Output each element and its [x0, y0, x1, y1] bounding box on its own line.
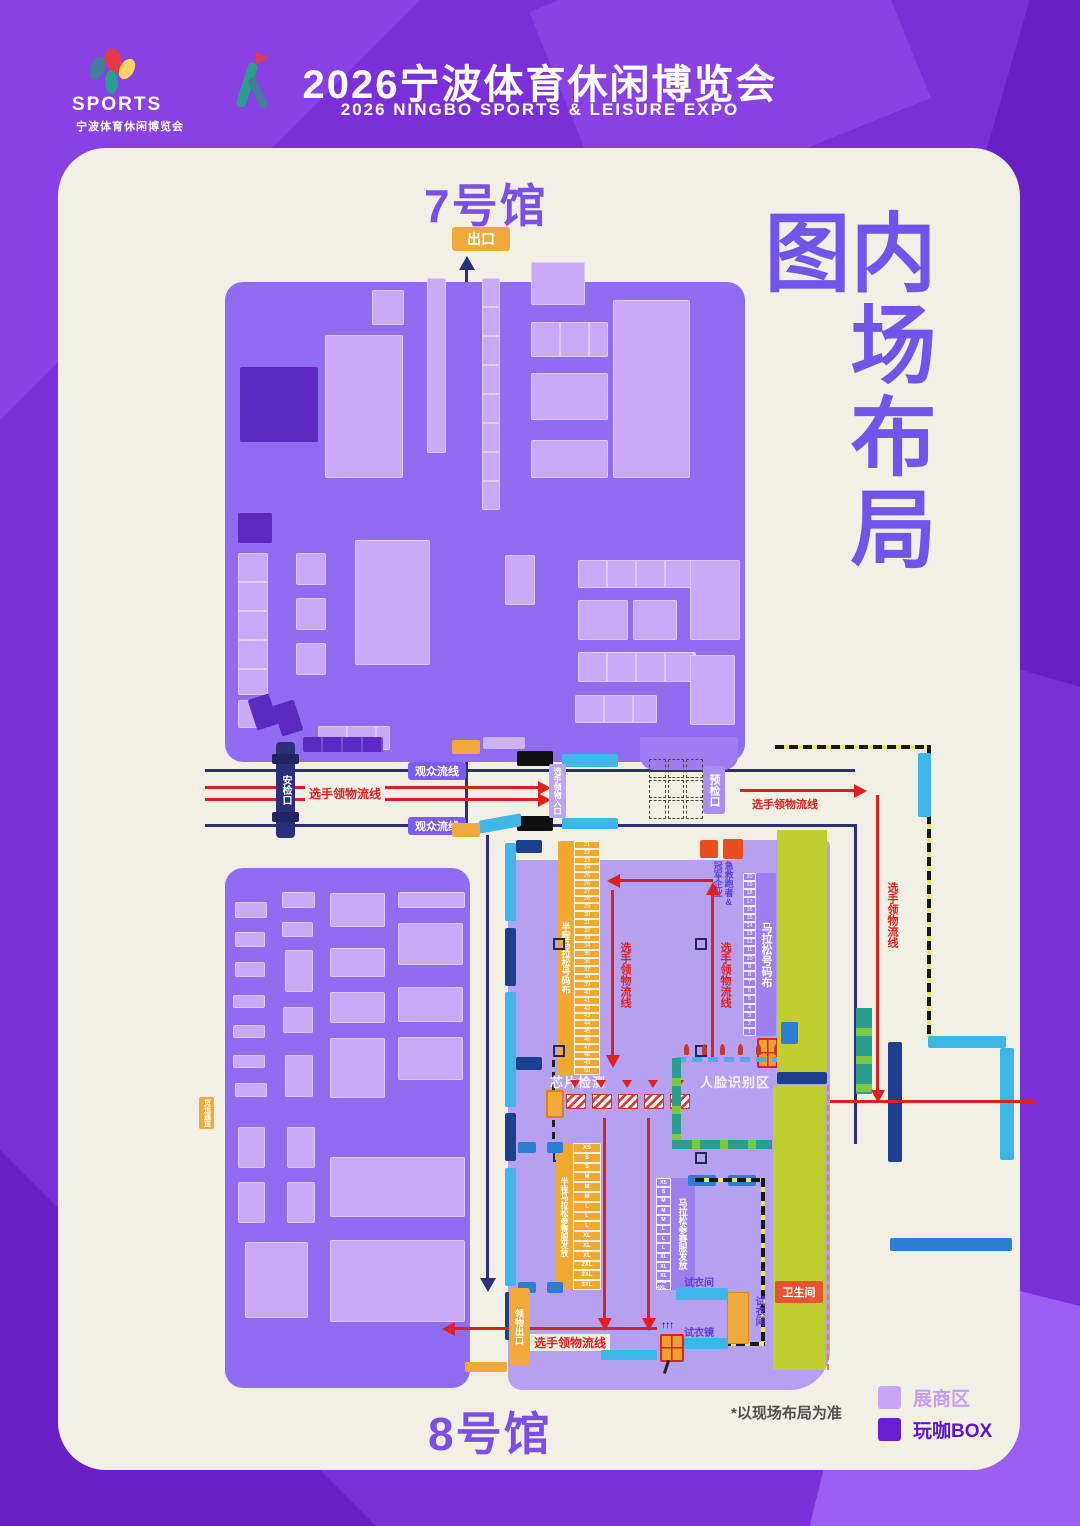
bib-number-cell: 42: [574, 1005, 600, 1013]
half-apparel-strip: 半程马拉松参赛服发放 XSSSMMMLLLXLXLXL2XL2XL3XL: [556, 1143, 601, 1290]
size-cell: L: [573, 1202, 601, 1212]
booth: [505, 555, 535, 605]
apparel-sizes: XSSMMMLLLXLXLXL2XL-4XL: [656, 1178, 671, 1290]
bib-number-cell: 3: [743, 1012, 756, 1020]
bib-number-cell: 1: [743, 1028, 756, 1036]
size-cell: S: [573, 1163, 601, 1173]
region-connector: [516, 840, 542, 853]
person-icon: [684, 1044, 689, 1055]
marathon-bib-numbers: 2019181716151413121110987654321: [743, 873, 756, 1036]
size-cell: XL: [573, 1231, 601, 1241]
booth: [235, 1083, 267, 1097]
region-barrier: [505, 843, 516, 921]
size-cell: M: [573, 1192, 601, 1202]
athlete-line-east: [740, 789, 856, 792]
face-queue-people: [684, 1044, 780, 1056]
size-cell: M: [573, 1182, 601, 1192]
fitting-room-top-label: 试衣间: [684, 1274, 714, 1289]
chip-gate-barrier: [592, 1094, 612, 1109]
booth: [531, 262, 585, 305]
bib-flow-label-b: 选手领物流线: [717, 942, 733, 1008]
pickup-exit-gate: 领物出口: [509, 1288, 530, 1366]
booth: [330, 948, 385, 977]
bib-number-cell: 30: [574, 911, 600, 919]
bib-number-cell: 23: [574, 857, 600, 865]
precheck-queue-grid: [648, 758, 704, 820]
size-cell: 2XL: [573, 1270, 601, 1280]
queue-cell: [686, 800, 703, 819]
freight-passage-label: 货运通道: [202, 1099, 212, 1127]
freight-passage-tag: 货运通道: [199, 1097, 214, 1129]
exchange-station-arrows: ↑↑↑: [661, 1320, 673, 1331]
booth: [531, 373, 608, 420]
booth: [578, 560, 696, 588]
athlete-entrance-label: 选手领物入口: [552, 767, 563, 815]
apparel-connector: [547, 1282, 563, 1293]
expo-layout-poster: SPORTS 宁波体育休闲博览会 2026宁波体育休闲博览会 2026 NING…: [0, 0, 1080, 1526]
chip-gate-barrier: [618, 1094, 638, 1109]
booth: [330, 992, 385, 1023]
exchange-station: [660, 1334, 684, 1362]
booth: [238, 1182, 265, 1223]
queue-cell: [686, 780, 703, 799]
bib-number-cell: 41: [574, 997, 600, 1005]
bib-number-cell: 6: [743, 987, 756, 995]
logo-name-cn: 宁波体育休闲博览会: [76, 118, 184, 134]
athlete-line-east-vertical-arrowhead: [871, 1090, 885, 1103]
bib-number-cell: 17: [743, 897, 756, 905]
booth: [296, 598, 326, 630]
half-marathon-bib-label: 半程马拉松号码布: [558, 841, 574, 1075]
precheck-gate-label: 预检口: [706, 774, 722, 807]
booth: [398, 1037, 463, 1080]
exit-gate-badge: 出口: [452, 227, 510, 251]
bib-number-cell: 49: [574, 1059, 600, 1067]
bib-number-cell: 27: [574, 888, 600, 896]
half-apparel-sizes: XSSSMMMLLLXLXLXL2XL2XL3XL: [573, 1143, 601, 1290]
booth: [296, 643, 326, 675]
bib-number-cell: 11: [743, 946, 756, 954]
corridor-kiosk: [483, 737, 525, 749]
booth: [287, 1182, 315, 1223]
person-icon: [720, 1044, 725, 1055]
face-area-wall-h: [672, 1140, 772, 1149]
queue-cell: [686, 759, 703, 778]
bib-number-cell: 24: [574, 864, 600, 872]
bib-number-cell: 32: [574, 927, 600, 935]
east-barrier: [918, 753, 931, 817]
bib-number-cell: 38: [574, 974, 600, 982]
size-cell: L: [656, 1243, 671, 1252]
size-cell: L: [656, 1234, 671, 1243]
bib-number-cell: 29: [574, 903, 600, 911]
column-marker: [695, 938, 707, 950]
bib-number-cell: 16: [743, 906, 756, 914]
bib-number-cell: 26: [574, 880, 600, 888]
bib-flow-arrowhead-down: [606, 1055, 620, 1068]
corridor-barrier: [562, 818, 618, 829]
exit-gate-label: 出口: [467, 229, 495, 249]
athlete-line-east-vertical: [876, 795, 879, 1095]
chip-gate-arrow: [570, 1080, 580, 1088]
bib-number-cell: 37: [574, 966, 600, 974]
apparel-connector: [518, 1142, 536, 1153]
bib-number-cell: 21: [574, 841, 600, 849]
bib-number-cell: 14: [743, 922, 756, 930]
booth: [372, 290, 404, 325]
booth: [233, 1055, 265, 1068]
service-block-inner: [781, 1022, 798, 1044]
spectator-line-top-label: 观众流线: [408, 762, 466, 780]
booth: [285, 950, 313, 992]
booth: [285, 1055, 313, 1097]
layout-side-title: 内场布局图: [838, 208, 928, 648]
size-cell: XS: [656, 1178, 671, 1187]
booth: [355, 540, 430, 665]
region-barrier: [505, 1168, 516, 1286]
aid-booth: [700, 840, 718, 858]
security-gate-tab: [272, 754, 299, 764]
queue-cell: [649, 780, 666, 799]
fitting-mirror-label: 试衣镜: [684, 1324, 714, 1339]
bib-number-cell: 12: [743, 938, 756, 946]
bib-number-cell: 19: [743, 881, 756, 889]
east-bar-cyan-h: [928, 1036, 1006, 1048]
restroom-badge: 卫生间: [775, 1281, 823, 1303]
hall8-spectator-line: [486, 835, 489, 1280]
booth: [282, 892, 315, 908]
booth: [398, 892, 465, 908]
booth: [427, 278, 446, 453]
legend-exhibitor-label: 展商区: [913, 1384, 970, 1411]
queue-cell: [668, 759, 685, 778]
booth: [238, 553, 268, 695]
bottom-bar-orange: [465, 1362, 507, 1372]
booth: [398, 923, 463, 965]
apparel-connector: [547, 1142, 563, 1153]
bib-number-cell: 22: [574, 849, 600, 857]
pickup-exit-flow-arrowhead: [442, 1322, 455, 1336]
queue-cell: [668, 800, 685, 819]
bib-number-cell: 10: [743, 955, 756, 963]
bottom-flow-line-a: [603, 1118, 606, 1323]
bib-number-cell: 39: [574, 981, 600, 989]
storage-kiosk: [546, 1090, 564, 1118]
bib-number-cell: 48: [574, 1052, 600, 1060]
legend-exhibitor-swatch: [878, 1386, 901, 1409]
corridor-kiosk: [452, 740, 480, 754]
athlete-line-east-arrowhead: [854, 784, 867, 798]
bib-number-cell: 15: [743, 914, 756, 922]
wanka-box: [238, 513, 272, 543]
region-connector: [516, 1057, 542, 1070]
spectator-line-east-vertical: [854, 824, 857, 1144]
bib-number-cell: 28: [574, 896, 600, 904]
person-icon: [738, 1044, 743, 1055]
booth: [235, 932, 265, 947]
bib-number-cell: 31: [574, 919, 600, 927]
size-cell: M: [573, 1172, 601, 1182]
region-barrier: [505, 928, 516, 986]
queue-cell: [649, 800, 666, 819]
east-teal-wall: [856, 1008, 872, 1094]
booth: [330, 893, 385, 927]
booth: [330, 1240, 465, 1322]
bib-number-cell: 5: [743, 995, 756, 1003]
size-cell: 2XL-4XL: [656, 1281, 671, 1290]
bib-number-cell: 34: [574, 942, 600, 950]
booth: [245, 1242, 308, 1318]
queue-cell: [668, 780, 685, 799]
corridor-kiosk: [452, 823, 480, 837]
east-bar-cyan-v: [1000, 1048, 1014, 1160]
size-cell: L: [656, 1225, 671, 1234]
booth: [482, 278, 500, 510]
chip-check-gates: [566, 1080, 706, 1112]
booth: [283, 1007, 313, 1033]
size-cell: M: [656, 1197, 671, 1206]
size-cell: S: [573, 1153, 601, 1163]
pickup-exit-flow-label: 选手领物流线: [530, 1334, 610, 1351]
bottom-bar-cyan: [601, 1350, 657, 1360]
restroom-label: 卫生间: [783, 1284, 816, 1300]
booth: [296, 553, 326, 585]
legend-wanka-swatch: [878, 1418, 901, 1441]
bib-number-cell: 40: [574, 989, 600, 997]
bib-number-cell: 2: [743, 1020, 756, 1028]
bib-number-cell: 45: [574, 1028, 600, 1036]
bib-number-cell: 20: [743, 873, 756, 881]
booth: [233, 995, 265, 1008]
booth: [325, 335, 403, 478]
corridor-kiosk-dark: [517, 816, 553, 831]
booth: [575, 695, 657, 723]
column-marker: [695, 1152, 707, 1164]
fitting-room-side-booth: [727, 1292, 749, 1344]
booth: [235, 902, 267, 918]
half-bib-numbers: 2122232425262728293031323334353637383940…: [574, 841, 600, 1075]
athlete-line-east-vertical-label: 选手领物流线: [884, 882, 900, 948]
face-queue-fence: [676, 1057, 778, 1062]
fitting-room-side-label: 试衣间: [751, 1296, 766, 1326]
bib-number-cell: 7: [743, 979, 756, 987]
booth: [690, 560, 740, 640]
size-cell: XS: [573, 1143, 601, 1153]
bib-number-cell: 46: [574, 1036, 600, 1044]
bib-number-cell: 33: [574, 935, 600, 943]
booth: [690, 655, 735, 725]
bib-number-cell: 8: [743, 971, 756, 979]
booth: [235, 962, 265, 977]
pickup-exit-label: 领物出口: [513, 1309, 526, 1345]
disclaimer-note: *以现场布局为准: [731, 1402, 842, 1423]
legend-wanka-box: 玩咖BOX: [878, 1416, 992, 1443]
spectator-line-top: [205, 769, 855, 772]
chip-gate-arrow: [648, 1080, 658, 1088]
size-cell: M: [656, 1206, 671, 1215]
bib-flow-arrowhead-up: [706, 882, 720, 895]
athlete-line-label: 选手领物流线: [305, 785, 385, 802]
wanka-box: [240, 367, 318, 442]
booth: [531, 322, 608, 357]
person-icon: [756, 1044, 761, 1055]
athlete-line-east-label: 选手领物流线: [748, 796, 822, 812]
half-apparel-label: 半程马拉松参赛服发放: [556, 1143, 573, 1290]
booth: [531, 440, 608, 478]
corridor-barrier: [562, 754, 618, 767]
booth: [233, 1025, 265, 1038]
size-cell: XL: [656, 1253, 671, 1262]
booth: [330, 1157, 465, 1217]
legend-wanka-label: 玩咖BOX: [913, 1416, 992, 1443]
size-cell: XL: [573, 1251, 601, 1261]
size-cell: L: [573, 1221, 601, 1231]
bib-flow-arrowhead-left: [607, 874, 620, 888]
bib-number-cell: 35: [574, 950, 600, 958]
fitting-dashed-top: [695, 1178, 765, 1182]
size-cell: 2XL: [573, 1261, 601, 1271]
wanka-box-row: [303, 737, 383, 752]
service-block-bottom-bar: [777, 1072, 827, 1084]
marathon-bib-label: 马拉松号码布: [756, 873, 776, 1036]
bib-flow-line-b: [711, 892, 714, 1060]
booth: [613, 300, 690, 478]
bib-number-cell: 44: [574, 1020, 600, 1028]
aid-booth: [723, 839, 743, 859]
bib-flow-label-a: 选手领物流线: [617, 942, 633, 1008]
size-cell: XL: [656, 1262, 671, 1271]
bib-number-cell: 9: [743, 963, 756, 971]
corridor-kiosk-dark: [517, 751, 553, 766]
queue-cell: [649, 759, 666, 778]
bib-number-cell: 4: [743, 1004, 756, 1012]
legend-exhibitor: 展商区: [878, 1384, 970, 1411]
hall8-spectator-arrowhead: [480, 1278, 496, 1292]
column-marker: [553, 1045, 565, 1057]
bib-number-cell: 47: [574, 1044, 600, 1052]
bib-number-cell: 25: [574, 872, 600, 880]
athlete-entrance-gate: 选手领物入口: [549, 764, 566, 818]
booth: [578, 652, 696, 682]
security-gate-tab: [272, 812, 299, 822]
chip-gate-arrow: [622, 1080, 632, 1088]
size-cell: M: [656, 1215, 671, 1224]
bib-number-cell: 18: [743, 889, 756, 897]
bottom-flow-line-b: [647, 1118, 650, 1323]
hall8-title: 8号馆: [428, 1398, 552, 1464]
size-cell: S: [656, 1187, 671, 1196]
booth: [282, 922, 313, 937]
size-cell: L: [573, 1212, 601, 1222]
size-cell: 3XL: [573, 1280, 601, 1290]
bib-number-cell: 13: [743, 930, 756, 938]
precheck-gate: 预检口: [703, 766, 725, 814]
booth: [238, 1127, 265, 1168]
booth: [398, 987, 463, 1022]
booth: [330, 1038, 385, 1098]
marathon-bib-strip: 2019181716151413121110987654321 马拉松号码布: [743, 873, 776, 1036]
region-barrier: [505, 992, 516, 1107]
bib-flow-line-top: [617, 879, 713, 882]
security-gate-label: 安检口: [278, 775, 293, 805]
size-cell: XL: [656, 1271, 671, 1280]
booth: [633, 600, 677, 640]
half-marathon-bib-strip: 半程马拉松号码布 2122232425262728293031323334353…: [558, 841, 600, 1075]
size-cell: XL: [573, 1241, 601, 1251]
fitting-room-top-bar: [676, 1288, 728, 1300]
chip-gate-barrier: [644, 1094, 664, 1109]
person-icon: [702, 1044, 707, 1055]
east-bar-bottom: [890, 1238, 1012, 1251]
booth: [578, 600, 628, 640]
face-area-wall-v: [672, 1058, 681, 1148]
booth: [287, 1127, 315, 1168]
service-block-bottom: [773, 1085, 825, 1370]
pickup-exit-flow-line: [452, 1327, 657, 1330]
chip-gate-arrow: [596, 1080, 606, 1088]
face-recognition-label: 人脸识别区: [700, 1072, 770, 1091]
column-marker: [553, 938, 565, 950]
exit-flow-arrowhead: [459, 256, 475, 270]
bib-number-cell: 43: [574, 1013, 600, 1021]
dashed-route-top: [775, 745, 930, 749]
region-barrier: [505, 1113, 516, 1161]
service-block-dashed-edge: [827, 1085, 829, 1370]
chip-gate-barrier: [566, 1094, 586, 1109]
bib-flow-line-a: [611, 890, 614, 1060]
page-subtitle: 2026 NINGBO SPORTS & LEISURE EXPO: [0, 100, 1080, 120]
bib-number-cell: 36: [574, 958, 600, 966]
